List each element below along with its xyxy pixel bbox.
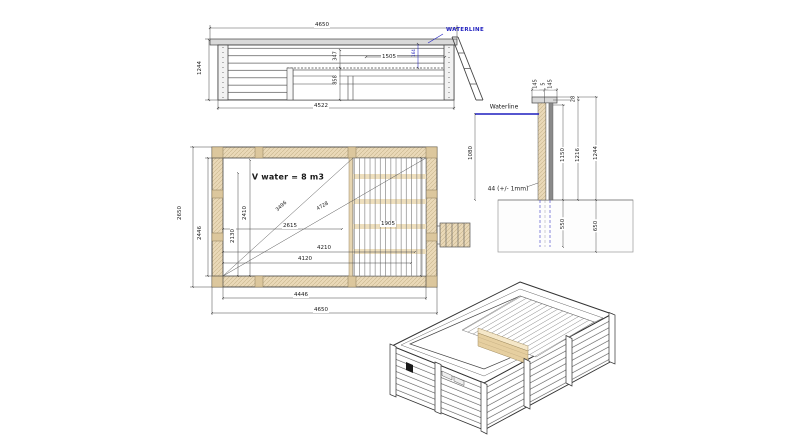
plan-dim-inner-height: 2446: [197, 225, 203, 241]
iso-pool: [390, 282, 615, 434]
elev-waterline-label: WATERLINE: [445, 27, 485, 33]
plan-dim-2615: 2615: [282, 223, 298, 229]
plan-dim-4210: 4210: [316, 245, 332, 251]
elev-dim-waterline-offset: 164: [412, 48, 416, 58]
section-dim-28: 28: [571, 95, 577, 103]
plan-dim-deck: 1905: [380, 221, 396, 227]
elev-dim-bench: 1505: [381, 54, 397, 60]
section-waterline-label: Waterline: [489, 105, 520, 112]
section-dim-1080: 1080: [468, 145, 474, 161]
plan-dim-2130: 2130: [230, 228, 236, 244]
pool-technical-drawing: 4650 WATERLINE 1505 347 858 164 1244 452…: [0, 0, 794, 446]
elev-dim-width-top: 4650: [314, 22, 330, 28]
section-dim-1244: 1244: [593, 145, 599, 161]
elev-dim-height: 1244: [197, 60, 203, 76]
section-dim-650: 650: [593, 220, 599, 233]
elev-dim-858: 858: [333, 74, 339, 86]
section-dim-1216: 1216: [575, 147, 581, 163]
plan-dim-inner-width: 4446: [293, 292, 309, 298]
plan-deck: [349, 158, 426, 276]
isometric-view-drawing: [378, 268, 678, 446]
plan-volume-label: V water = 8 m3: [251, 174, 325, 183]
elev-dim-347: 347: [333, 50, 339, 62]
plan-dim-outer-width: 4650: [313, 307, 329, 313]
section-dim-550: 550: [560, 218, 566, 231]
elev-dim-width-bottom: 4522: [313, 103, 329, 109]
plan-dim-2410: 2410: [242, 205, 248, 221]
elevation-inner-bench: [287, 68, 444, 100]
section-dim-thickness: 44 (+/- 1mm): [487, 187, 530, 194]
section-view-drawing: [455, 70, 665, 270]
plan-dim-4120: 4120: [297, 256, 313, 262]
plan-dim-outer-height: 2650: [177, 205, 183, 221]
section-dim-cap-right: 145: [548, 78, 554, 90]
section-dim-cap-gap: 5: [541, 81, 547, 86]
section-dim-1150: 1150: [560, 147, 566, 163]
section-dim-cap-left: 145: [533, 78, 539, 90]
